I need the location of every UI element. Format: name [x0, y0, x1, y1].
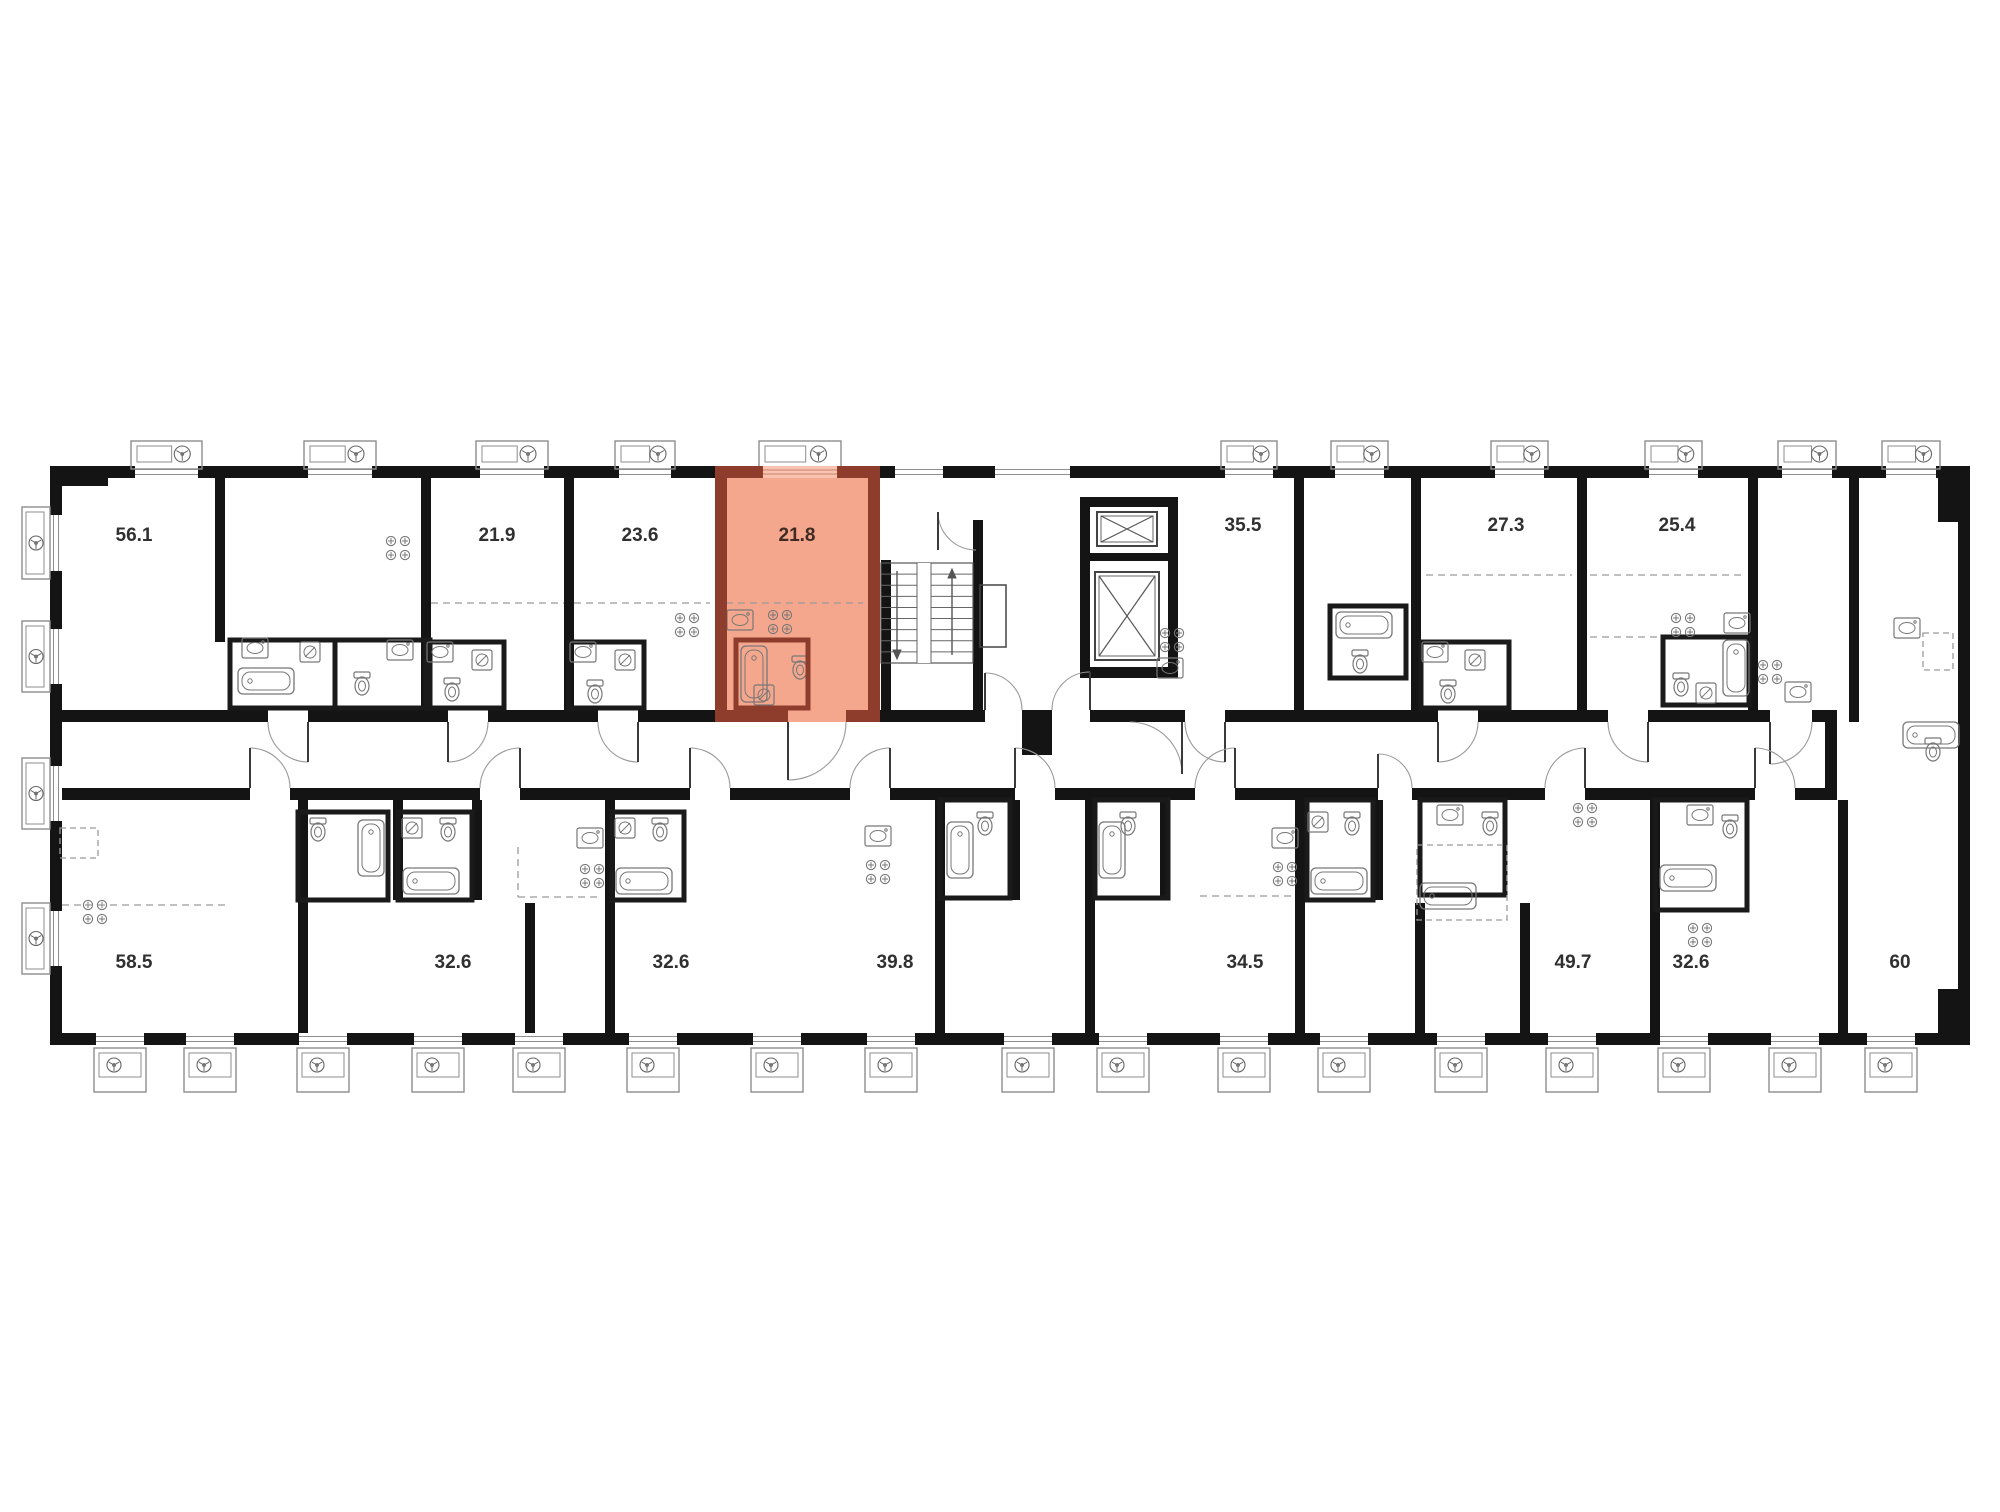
- window-opening: [50, 515, 62, 571]
- sink-basin: [1277, 833, 1293, 844]
- elevator-shaft-wall: [1080, 497, 1178, 507]
- balcony-inner: [1651, 446, 1678, 462]
- sink-faucet: [597, 831, 599, 833]
- bathtub-drain: [1110, 832, 1114, 836]
- balcony-inner: [310, 446, 345, 462]
- balcony-inner: [302, 1053, 344, 1077]
- sink-basin: [1729, 618, 1745, 629]
- balcony-inner: [1497, 446, 1524, 462]
- balcony-inner: [632, 1053, 674, 1077]
- bathtub-drain: [1346, 623, 1350, 627]
- balcony-inner: [1888, 446, 1916, 462]
- door-swing-arc: [1608, 722, 1648, 762]
- window-opening: [753, 1033, 801, 1045]
- highlighted-unit-wall: [846, 710, 880, 722]
- balcony: [759, 441, 841, 469]
- bathtub-drain: [1321, 879, 1325, 883]
- highlighted-unit[interactable]: [715, 466, 880, 722]
- balcony-inner: [137, 446, 172, 462]
- stair-arrow-up-head: [948, 569, 956, 578]
- window-opening: [50, 629, 62, 684]
- bathtub-inner: [1340, 616, 1388, 634]
- balcony-inner: [1102, 1053, 1144, 1077]
- toilet-bowl: [1441, 685, 1455, 703]
- area-label: 39.8: [877, 952, 914, 973]
- area-label: 60: [1889, 952, 1910, 973]
- toilet-bowl-inner: [657, 827, 664, 837]
- sink-basin: [1899, 623, 1915, 634]
- bathtub-drain: [626, 879, 630, 883]
- corridor-wall: [50, 788, 250, 800]
- highlighted-unit-wall: [715, 710, 788, 722]
- wall-pillar: [1938, 466, 1970, 522]
- toilet-bowl: [588, 685, 602, 703]
- elevator-shaft-wall: [1080, 553, 1178, 561]
- window-opening: [480, 466, 544, 478]
- washer-slash: [1470, 655, 1480, 665]
- washer-slash: [477, 655, 487, 665]
- balcony: [297, 1048, 349, 1092]
- balcony-inner: [1663, 1053, 1705, 1077]
- floor-plan-svg: 56.121.923.621.835.527.325.458.532.632.6…: [0, 0, 2000, 1512]
- bathtub-inner: [242, 672, 290, 690]
- area-label: 32.6: [1673, 952, 1710, 973]
- toilet-bowl: [1353, 655, 1367, 673]
- window-opening: [186, 1033, 234, 1045]
- window-opening: [1782, 466, 1832, 478]
- window-opening: [1004, 1033, 1052, 1045]
- elevator-shaft-wall: [1080, 497, 1090, 677]
- area-label: 21.9: [479, 525, 516, 546]
- balcony: [1097, 1048, 1149, 1092]
- bathtub-drain: [958, 832, 962, 836]
- bathroom-walls: [1663, 637, 1749, 705]
- balcony: [1002, 1048, 1054, 1092]
- zone-dashed-rect: [1923, 633, 1953, 670]
- window-opening: [1437, 1033, 1485, 1045]
- toilet-bowl-inner: [1357, 659, 1364, 669]
- toilet-bowl-inner: [359, 681, 366, 691]
- balcony: [184, 1048, 236, 1092]
- toilet-bowl: [311, 823, 325, 841]
- sink-basin: [1790, 687, 1806, 698]
- wall: [215, 466, 225, 642]
- washer-slash: [1313, 817, 1323, 827]
- wall: [525, 903, 535, 1033]
- area-label: 58.5: [116, 952, 153, 973]
- toilet-bowl: [1723, 820, 1737, 838]
- toilet-bowl-inner: [315, 827, 322, 837]
- balcony: [1218, 1048, 1270, 1092]
- toilet-bowl: [1926, 743, 1940, 761]
- window-opening: [299, 1033, 347, 1045]
- window-opening: [1771, 1033, 1819, 1045]
- window-opening: [96, 1033, 144, 1045]
- window-opening: [1225, 466, 1273, 478]
- toilet-bowl: [1674, 678, 1688, 696]
- bathtub-drain: [1670, 876, 1674, 880]
- window-opening: [414, 1033, 462, 1045]
- balcony-inner: [417, 1053, 459, 1077]
- window-opening: [135, 466, 198, 478]
- door-swing-arc: [788, 722, 846, 780]
- lobby-post: [1022, 710, 1052, 755]
- corridor-wall: [1225, 710, 1438, 722]
- area-label: 32.6: [435, 952, 472, 973]
- sink-basin: [1692, 810, 1708, 821]
- area-label: 56.1: [116, 525, 153, 546]
- balcony-inner: [1323, 1053, 1365, 1077]
- corridor-wall: [520, 788, 690, 800]
- balcony: [865, 1048, 917, 1092]
- window-opening: [308, 466, 372, 478]
- bathroom-walls: [1095, 800, 1168, 898]
- balcony: [1318, 1048, 1370, 1092]
- bathtub-drain: [369, 830, 373, 834]
- balcony-inner: [621, 446, 650, 462]
- sink-faucet: [590, 645, 592, 647]
- balcony: [751, 1048, 803, 1092]
- window-opening: [1548, 1033, 1596, 1045]
- exterior-wall: [1958, 466, 1970, 1045]
- bathroom-walls: [612, 812, 684, 900]
- bathroom-walls: [1655, 800, 1747, 910]
- corridor-wall: [730, 788, 850, 800]
- balcony-inner: [1007, 1053, 1049, 1077]
- corridor-wall: [488, 710, 598, 722]
- bathroom-walls: [335, 640, 430, 708]
- corridor-wall: [1795, 788, 1825, 800]
- toilet-bowl-inner: [1727, 824, 1734, 834]
- bathroom-walls: [1330, 606, 1406, 678]
- wall: [1838, 800, 1848, 1033]
- elevator-shaft-wall: [1168, 497, 1178, 677]
- sink-basin: [247, 643, 263, 654]
- highlighted-unit-wall: [715, 466, 763, 478]
- corridor-wall: [1478, 710, 1608, 722]
- toilet-bowl-inner: [982, 821, 989, 831]
- bathtub-drain: [413, 879, 417, 883]
- wall: [1295, 800, 1305, 1033]
- sink-basin: [582, 833, 598, 844]
- balcony-inner: [1440, 1053, 1482, 1077]
- wall: [1849, 466, 1859, 722]
- corridor-wall: [1812, 710, 1825, 722]
- balcony: [1865, 1048, 1917, 1092]
- window-opening: [619, 466, 671, 478]
- stair-stringer: [917, 563, 931, 663]
- balcony-inner: [482, 446, 517, 462]
- highlighted-unit-wall: [868, 466, 880, 722]
- washer-slash: [305, 647, 315, 657]
- window-opening: [1649, 466, 1698, 478]
- bathtub-inner: [1103, 826, 1121, 874]
- sink-faucet: [447, 645, 449, 647]
- toilet-bowl: [1121, 817, 1135, 835]
- window-opening: [1495, 466, 1544, 478]
- area-label: 32.6: [653, 952, 690, 973]
- balcony-inner: [189, 1053, 231, 1077]
- balcony: [412, 1048, 464, 1092]
- wall: [1520, 903, 1530, 1033]
- door-swing-arc: [1545, 748, 1585, 788]
- door-swing-arc: [480, 748, 520, 788]
- sink-faucet: [885, 829, 887, 831]
- area-label: 49.7: [1555, 952, 1592, 973]
- area-label: 27.3: [1488, 515, 1525, 536]
- window-opening: [1660, 1033, 1708, 1045]
- door-swing-arc: [938, 512, 976, 550]
- washer-slash: [620, 823, 630, 833]
- window-opening: [1335, 466, 1384, 478]
- sink-faucet: [1442, 645, 1444, 647]
- highlighted-unit-window: [763, 466, 837, 478]
- balcony-inner: [1870, 1053, 1912, 1077]
- sink-basin: [1442, 810, 1458, 821]
- balcony-inner: [1784, 446, 1812, 462]
- area-label: 34.5: [1227, 952, 1264, 973]
- toilet-bowl-inner: [445, 827, 452, 837]
- door-swing-arc: [598, 722, 638, 762]
- toilet-bowl-inner: [449, 687, 456, 697]
- bathtub-inner: [362, 824, 380, 872]
- balcony: [513, 1048, 565, 1092]
- balcony-inner: [1223, 1053, 1265, 1077]
- sink-basin: [575, 647, 591, 658]
- balcony-inner: [765, 446, 806, 462]
- balcony-inner: [1551, 1053, 1593, 1077]
- door-swing-arc: [1438, 722, 1478, 762]
- sink-faucet: [1457, 808, 1459, 810]
- bathtub-inner: [620, 872, 668, 890]
- floor-plan-page: 56.121.923.621.835.527.325.458.532.632.6…: [0, 0, 2000, 1512]
- sink-faucet: [1292, 831, 1294, 833]
- wall: [1415, 903, 1425, 1033]
- washer-slash: [1701, 688, 1711, 698]
- bathtub-inner: [407, 872, 455, 890]
- window-opening: [1220, 1033, 1268, 1045]
- bathtub-inner: [1727, 644, 1745, 692]
- door-swing-arc: [1378, 754, 1412, 788]
- sink-faucet: [1805, 685, 1807, 687]
- balcony-inner: [870, 1053, 912, 1077]
- toilet-bowl: [978, 817, 992, 835]
- window-opening: [867, 1033, 915, 1045]
- wall-pillar: [50, 466, 108, 486]
- bathtub-inner: [1315, 872, 1363, 890]
- toilet-bowl: [1345, 817, 1359, 835]
- bathtub-drain: [248, 679, 252, 683]
- door-swing-arc: [690, 748, 730, 788]
- door-swing-arc: [1185, 722, 1225, 762]
- door-swing-arc: [1130, 722, 1182, 774]
- bathtub-drain: [1913, 733, 1917, 737]
- door-swing-arc: [1770, 722, 1812, 764]
- highlighted-unit-wall: [837, 466, 880, 478]
- balcony: [1769, 1048, 1821, 1092]
- wall: [1577, 466, 1587, 722]
- window-opening: [515, 1033, 563, 1045]
- balcony: [131, 441, 202, 469]
- corridor-wall: [1090, 710, 1185, 722]
- sink-basin: [1427, 647, 1443, 658]
- toilet-bowl: [1483, 817, 1497, 835]
- balcony: [1658, 1048, 1710, 1092]
- bathroom-walls: [230, 640, 335, 708]
- balcony: [1435, 1048, 1487, 1092]
- washer-slash: [407, 823, 417, 833]
- wall: [1294, 466, 1304, 722]
- zone-dashed-rect: [60, 828, 98, 858]
- toilet-bowl: [653, 823, 667, 841]
- sink-faucet: [1744, 616, 1746, 618]
- sink-basin: [392, 645, 408, 656]
- sink-faucet: [1914, 621, 1916, 623]
- balcony-inner: [756, 1053, 798, 1077]
- balcony: [94, 1048, 146, 1092]
- window-opening: [1320, 1033, 1368, 1045]
- corridor-wall: [50, 710, 268, 722]
- window-opening: [1886, 466, 1936, 478]
- elevator-shaft-wall: [1080, 667, 1178, 678]
- stair-arrow-down-head: [893, 650, 901, 659]
- toilet-bowl-inner: [1445, 689, 1452, 699]
- balcony-inner: [1227, 446, 1253, 462]
- balcony: [1546, 1048, 1598, 1092]
- sink-faucet: [407, 643, 409, 645]
- balcony-inner: [99, 1053, 141, 1077]
- toilet-bowl-inner: [1349, 821, 1356, 831]
- balcony: [627, 1048, 679, 1092]
- window-opening: [1867, 1033, 1915, 1045]
- balcony: [304, 441, 376, 469]
- toilet-bowl: [441, 823, 455, 841]
- window-opening: [995, 466, 1070, 478]
- toilet-bowl-inner: [592, 689, 599, 699]
- wall-pillar: [1938, 989, 1970, 1045]
- balcony-inner: [1774, 1053, 1816, 1077]
- window-opening: [50, 911, 62, 966]
- bathtub-inner: [1664, 869, 1712, 887]
- shaft-duct: [980, 585, 1006, 647]
- corridor-wall: [290, 788, 480, 800]
- window-opening: [1099, 1033, 1147, 1045]
- bathroom-walls: [1307, 800, 1373, 900]
- toilet-bowl: [445, 683, 459, 701]
- window-opening: [629, 1033, 677, 1045]
- area-label: 21.8: [779, 525, 816, 546]
- door-swing-arc: [850, 748, 890, 788]
- door-swing-arc: [448, 722, 488, 762]
- balcony-inner: [1337, 446, 1364, 462]
- sink-basin: [870, 831, 886, 842]
- bathtub-inner: [951, 826, 969, 874]
- washer-slash: [620, 655, 630, 665]
- toilet-bowl: [355, 677, 369, 695]
- bathroom-walls: [569, 642, 644, 708]
- door-swing-arc: [985, 673, 1022, 710]
- area-label: 25.4: [1659, 515, 1696, 536]
- window-opening: [895, 466, 943, 478]
- balcony: [476, 441, 548, 469]
- area-label: 23.6: [622, 525, 659, 546]
- toilet-bowl-inner: [1487, 821, 1494, 831]
- balcony-inner: [518, 1053, 560, 1077]
- sink-basin: [432, 647, 448, 658]
- bathroom-walls: [298, 812, 388, 900]
- area-label: 35.5: [1225, 515, 1262, 536]
- window-opening: [50, 766, 62, 821]
- door-swing-arc: [1755, 748, 1795, 788]
- highlighted-unit-wall: [715, 466, 727, 722]
- bathtub-inner: [1907, 726, 1955, 744]
- corridor-end-wall: [1825, 710, 1837, 800]
- sink-faucet: [1707, 808, 1709, 810]
- toilet-bowl-inner: [1678, 682, 1685, 692]
- bathtub-drain: [1734, 650, 1738, 654]
